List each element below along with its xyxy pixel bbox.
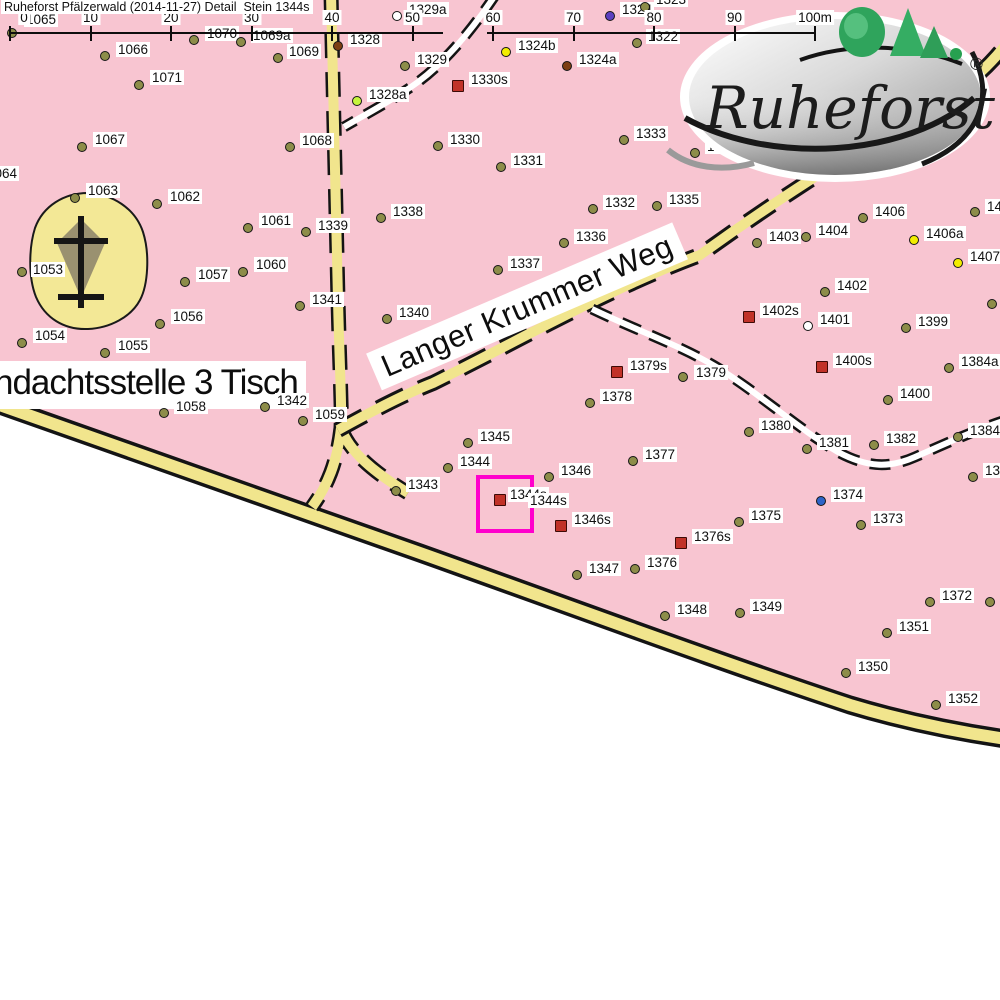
tree-marker-1377 [628,456,638,466]
marker-label-1400: 1400 [898,386,932,401]
marker-label-1379s: 1379s [628,358,669,373]
marker-label-1342: 1342 [275,393,309,408]
marker-label-1401: 1401 [818,312,852,327]
tree-marker-1341 [295,301,305,311]
marker-label-1330: 1330 [448,132,482,147]
tree-marker-1331 [496,162,506,172]
tree-marker-1399 [901,323,911,333]
tree-marker-1055 [100,348,110,358]
marker-label-1384: 1384 [968,423,1000,438]
scale-tick-80 [653,26,655,41]
tree-marker-1342 [260,402,270,412]
tree-marker-1374 [816,496,826,506]
marker-label-1068: 1068 [300,133,334,148]
tree-marker-1343 [391,486,401,496]
tree-marker-1345 [463,438,473,448]
scale-tick-label-40: 40 [322,10,341,25]
tree-marker-1375 [734,517,744,527]
marker-label-1379: 1379 [694,365,728,380]
tree-marker-1063 [70,193,80,203]
marker-label-1400s: 1400s [833,353,874,368]
tree-marker-1060 [238,267,248,277]
scale-tick-100m [814,26,816,41]
marker-label-1344: 1344 [458,454,492,469]
marker-label-1058: 1058 [174,399,208,414]
tree-marker-1056 [155,319,165,329]
marker-label-1372: 1372 [940,588,974,603]
marker-label-1063: 1063 [86,183,120,198]
marker-label-1375: 1375 [749,508,783,523]
marker-label-1054: 1054 [33,328,67,343]
marker-label-1328a: 1328a [367,87,409,102]
tree-marker-1068 [285,142,295,152]
marker-label-1349: 1349 [750,599,784,614]
tree-marker-1333 [619,135,629,145]
marker-label-1338: 1338 [391,204,425,219]
marker-label-1351: 1351 [897,619,931,634]
tree-marker-1381 [802,444,812,454]
stone-1344s-label-duplicate: 1344s [528,493,569,508]
tree-marker-1378 [585,398,595,408]
stone-marker-1379s [611,366,623,378]
tree-marker-unlabeled [987,299,997,309]
marker-label-1057: 1057 [196,267,230,282]
scale-tick-70 [573,26,575,41]
marker-label-1340: 1340 [397,305,431,320]
scale-tick-label-90: 90 [725,10,744,25]
tree-marker-1339 [301,227,311,237]
tree-marker-1067 [77,142,87,152]
scale-tick-0 [9,26,11,41]
marker-label-1345: 1345 [478,429,512,444]
map-title: Ruheforst Pfälzerwald (2014-11-27) Detai… [1,0,313,14]
marker-label-1350: 1350 [856,659,890,674]
tree-marker-138 [968,472,978,482]
tree-marker-1054 [17,338,27,348]
tree-marker-1324a [562,61,572,71]
marker-label-1381: 1381 [817,435,851,450]
tree-marker-1401 [803,321,813,331]
stone-marker-1346s [555,520,567,532]
scale-tick-label-50: 50 [403,10,422,25]
tree-marker-1350 [841,668,851,678]
marker-label-1377: 1377 [643,447,677,462]
tree-marker-1407a [953,258,963,268]
scale-tick-40 [331,26,333,41]
marker-label-1406: 1406 [873,204,907,219]
scale-tick-60 [492,26,494,41]
tree-marker-1053 [17,267,27,277]
tree-marker-1335 [652,201,662,211]
marker-label-1059: 1059 [313,407,347,422]
marker-label-1403: 1403 [767,229,801,244]
tree-marker-1406 [858,213,868,223]
marker-label-1374: 1374 [831,487,865,502]
marker-label-1337: 1337 [508,256,542,271]
tree-marker-1379 [678,372,688,382]
marker-label-1064: 1064 [0,166,19,181]
tree-marker-unlabeled [985,597,995,607]
tree-marker-1384a [944,363,954,373]
marker-label-1404: 1404 [816,223,850,238]
scale-tick-10 [90,26,92,41]
tree-marker-1380 [744,427,754,437]
marker-label-1346s: 1346s [572,512,613,527]
marker-label-1406a: 1406a [924,226,966,241]
tree-marker-1372 [925,597,935,607]
tree-marker-1402 [820,287,830,297]
scale-bar-line [10,32,443,34]
marker-label-1341: 1341 [310,292,344,307]
tree-marker-1058 [159,408,169,418]
tree-marker-1330 [433,141,443,151]
stone-marker-1330s [452,80,464,92]
marker-label-1056: 1056 [171,309,205,324]
scale-tick-30 [251,26,253,41]
marker-label-1402s: 1402s [760,303,801,318]
marker-label-1067: 1067 [93,132,127,147]
marker-label-1376s: 1376s [692,529,733,544]
marker-label-1373: 1373 [871,511,905,526]
tree-marker-1336 [559,238,569,248]
tree-marker-1057 [180,277,190,287]
tree-marker-1346 [544,472,554,482]
marker-label-1336: 1336 [574,229,608,244]
marker-label-1331: 1331 [511,153,545,168]
tree-marker-1349 [735,608,745,618]
marker-label-138: 138 [983,463,1000,478]
tree-marker-1406a [909,235,919,245]
tree-marker-1376 [630,564,640,574]
tree-marker-1061 [243,223,253,233]
marker-label-1330s: 1330s [469,72,510,87]
tree-marker-1329 [400,61,410,71]
scale-tick-label-70: 70 [564,10,583,25]
marker-label-1339: 1339 [316,218,350,233]
scale-tick-50 [412,26,414,41]
marker-label-1346: 1346 [559,463,593,478]
tree-marker-1344 [443,463,453,473]
marker-label-1055: 1055 [116,338,150,353]
tree-marker-1384 [953,432,963,442]
tree-marker-1337 [493,265,503,275]
tree-marker-1373 [856,520,866,530]
marker-label-1071: 1071 [150,70,184,85]
marker-label-1399: 1399 [916,314,950,329]
tree-marker-1403 [752,238,762,248]
map-stage: Langer Krummer Weg ndachtsstelle 3 Tisch… [0,0,1000,1000]
stone-marker-1402s [743,311,755,323]
marker-label-1352: 1352 [946,691,980,706]
stone-marker-1376s [675,537,687,549]
marker-label-1407a: 1407a [968,249,1000,264]
highlight-box-1344s [476,475,534,533]
marker-label-1061: 1061 [259,213,293,228]
scale-tick-90 [734,26,736,41]
marker-label-1380: 1380 [759,418,793,433]
tree-marker-1404 [801,232,811,242]
marker-label-1347: 1347 [587,561,621,576]
tree-marker-1062 [152,199,162,209]
logo-wordmark: Ruheforst [704,74,996,142]
tree-marker-140 [970,207,980,217]
scale-tick-label-80: 80 [644,10,663,25]
scale-tick-label-60: 60 [483,10,502,25]
tree-marker-1059 [298,416,308,426]
scale-bar-line [487,32,815,34]
tree-marker-1348 [660,611,670,621]
marker-label-140: 140 [985,199,1000,214]
marker-label-1332: 1332 [603,195,637,210]
scale-tick-label-100m: 100m [796,10,834,25]
tree-marker-1071 [134,80,144,90]
tree-marker-1328a [352,96,362,106]
marker-label-1384a: 1384a [959,354,1000,369]
tree-marker-1347 [572,570,582,580]
tree-marker-1352 [931,700,941,710]
marker-label-1343: 1343 [406,477,440,492]
marker-label-1053: 1053 [31,262,65,277]
marker-label-1376: 1376 [645,555,679,570]
tree-marker-1332 [588,204,598,214]
marker-label-1348: 1348 [675,602,709,617]
tree-marker-1400 [883,395,893,405]
marker-label-1402: 1402 [835,278,869,293]
scale-tick-20 [170,26,172,41]
marker-label-1382: 1382 [884,431,918,446]
tree-marker-1382 [869,440,879,450]
tree-marker-1338 [376,213,386,223]
tree-marker-1340 [382,314,392,324]
marker-label-1378: 1378 [600,389,634,404]
marker-label-1062: 1062 [168,189,202,204]
marker-label-1060: 1060 [254,257,288,272]
stone-marker-1400s [816,361,828,373]
tree-marker-1351 [882,628,892,638]
